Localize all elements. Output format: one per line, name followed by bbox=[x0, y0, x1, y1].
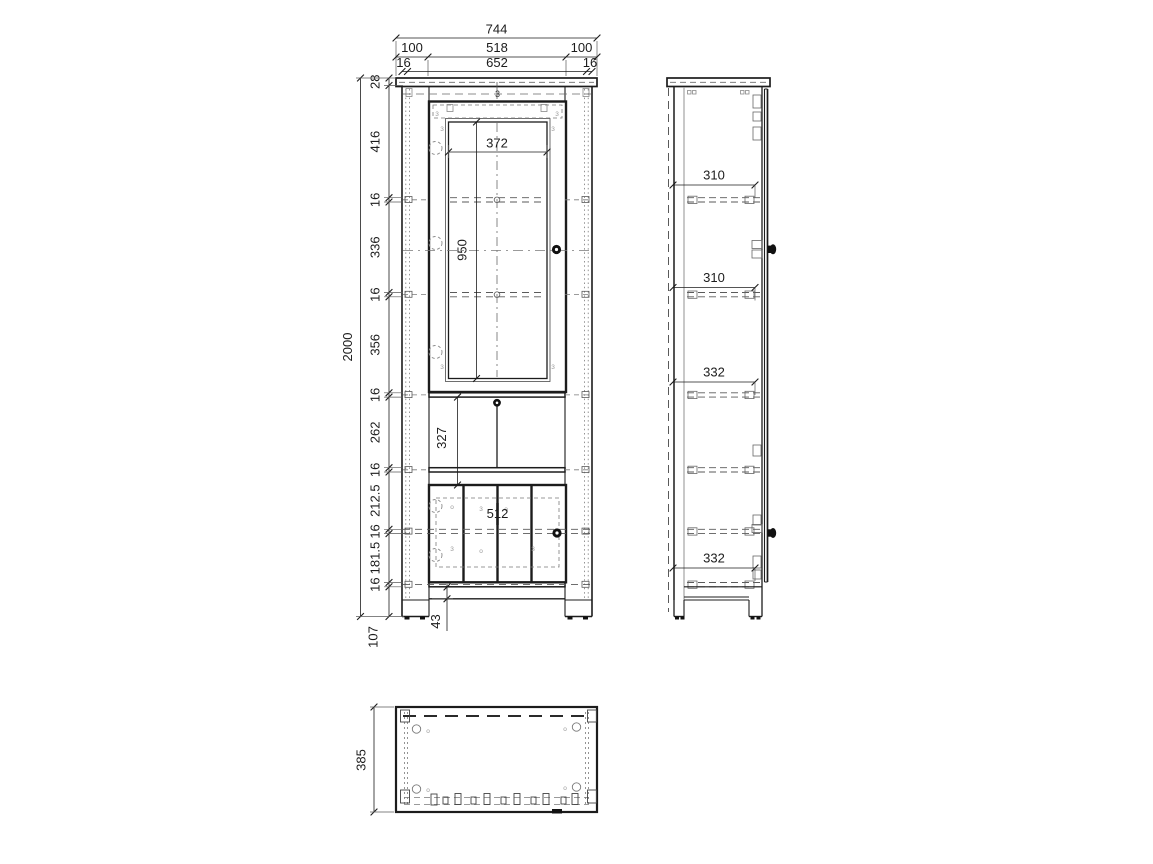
dim-front-door-opening: 518 bbox=[486, 40, 508, 55]
hinge-plate bbox=[753, 127, 761, 140]
dim-front-chain-5: 356 bbox=[368, 334, 383, 356]
hardware-foot bbox=[681, 617, 685, 620]
hardware-mark: o bbox=[426, 728, 430, 735]
hardware-foot bbox=[420, 617, 425, 620]
door-knob-side bbox=[770, 244, 776, 254]
hardware-mark: 3 bbox=[450, 546, 454, 553]
hardware-foot bbox=[751, 617, 755, 620]
dim-front-chain-6: 16 bbox=[368, 388, 383, 402]
dim-front-right-inset: 100 bbox=[571, 40, 593, 55]
hardware-mark: o bbox=[450, 504, 454, 511]
dim-top-depth: 385 bbox=[354, 749, 369, 771]
dim-front-panel-left: 16 bbox=[396, 55, 410, 70]
dim-front-chain-12: 16 bbox=[368, 577, 383, 591]
dim-side-gap-0: 310 bbox=[703, 168, 725, 183]
dim-front-inner-width: 652 bbox=[486, 55, 508, 70]
dowel-mark bbox=[746, 91, 750, 95]
hinge-plate bbox=[753, 445, 761, 456]
top-plan-outline bbox=[396, 707, 597, 812]
dim-front-chain-2: 16 bbox=[368, 193, 383, 207]
dim-side-gap-1: 310 bbox=[703, 270, 725, 285]
hardware-screw-mark: 3 bbox=[495, 89, 500, 99]
hardware-screw-mark: 3 bbox=[435, 111, 439, 118]
hardware-screw-mark: 3 bbox=[551, 126, 555, 133]
hardware-mark: 3 bbox=[531, 546, 535, 553]
hardware-foot bbox=[675, 617, 679, 620]
hardware-foot bbox=[583, 617, 588, 620]
dim-front-left-inset: 100 bbox=[401, 40, 423, 55]
top-dimensions: 385 bbox=[354, 704, 395, 816]
hinge-plate bbox=[752, 525, 762, 533]
dim-front-glass-width: 372 bbox=[486, 136, 508, 151]
drawing-circle bbox=[496, 402, 499, 405]
hardware-mark: o bbox=[563, 726, 567, 733]
hinge-plate bbox=[753, 515, 761, 525]
hardware-mark: 3 bbox=[479, 506, 483, 513]
hardware-foot bbox=[405, 617, 410, 620]
hinge-plate bbox=[752, 250, 762, 258]
side-dimensions: 310310332332 bbox=[670, 168, 759, 582]
dim-front-chain-8: 16 bbox=[368, 463, 383, 477]
hardware-mark: o bbox=[563, 785, 567, 792]
dim-front-plinth: 107 bbox=[366, 626, 381, 648]
door-knob-top bbox=[552, 809, 562, 814]
dowel-mark bbox=[741, 91, 745, 95]
shelf-edge bbox=[429, 468, 565, 472]
door-knob-side bbox=[770, 528, 776, 538]
drawing-circle bbox=[555, 531, 558, 534]
hinge-plate bbox=[753, 112, 761, 121]
drawing-page: 3333333o3o3o3512744100518100166521628416… bbox=[0, 0, 1153, 864]
dim-side-gap-3: 332 bbox=[703, 551, 725, 566]
dowel-mark bbox=[688, 91, 692, 95]
shelf-edge bbox=[429, 393, 565, 397]
hardware-screw-mark: 3 bbox=[551, 364, 555, 371]
top-view: oooo bbox=[396, 707, 597, 814]
hinge-plate bbox=[752, 241, 762, 249]
hardware-foot bbox=[568, 617, 573, 620]
dim-front-total-width: 744 bbox=[486, 22, 508, 37]
dim-front-chain-10: 16 bbox=[368, 524, 383, 538]
dim-side-gap-2: 332 bbox=[703, 365, 725, 380]
hinge-plate bbox=[753, 95, 761, 108]
dim-front-chain-7: 262 bbox=[368, 422, 383, 444]
cabinet-top-cap bbox=[396, 78, 597, 87]
dim-front-chain-4: 16 bbox=[368, 287, 383, 301]
hardware-screw-mark: 3 bbox=[440, 364, 444, 371]
dowel-mark bbox=[693, 91, 697, 95]
front-view: 3333333o3o3o3512 bbox=[396, 78, 597, 620]
hardware-screw-mark: 3 bbox=[440, 126, 444, 133]
hardware-foot bbox=[757, 617, 761, 620]
dim-front-chain-1: 416 bbox=[368, 131, 383, 153]
hardware-screw-mark: 3 bbox=[555, 111, 559, 118]
technical-drawing-canvas: 3333333o3o3o3512744100518100166521628416… bbox=[0, 0, 1153, 864]
dim-front-middle-opening: 327 bbox=[434, 427, 449, 449]
dim-front-glass-height: 950 bbox=[455, 239, 470, 261]
dim-front-panel-right: 16 bbox=[583, 55, 597, 70]
hardware-mark: o bbox=[479, 548, 483, 555]
dim-front-chain-0: 28 bbox=[368, 75, 383, 89]
hardware-mark: o bbox=[426, 787, 430, 794]
side-view bbox=[667, 78, 776, 620]
dim-front-chain-9: 212.5 bbox=[368, 484, 383, 517]
hinge-plate bbox=[753, 570, 761, 579]
dim-front-chain-11: 181.5 bbox=[368, 542, 383, 575]
dim-front-chain-3: 336 bbox=[368, 236, 383, 258]
drawing-circle bbox=[555, 248, 558, 251]
drawing-rect bbox=[406, 89, 412, 97]
dim-front-apron: 43 bbox=[428, 614, 443, 628]
dim-front-total-height: 2000 bbox=[340, 333, 355, 362]
